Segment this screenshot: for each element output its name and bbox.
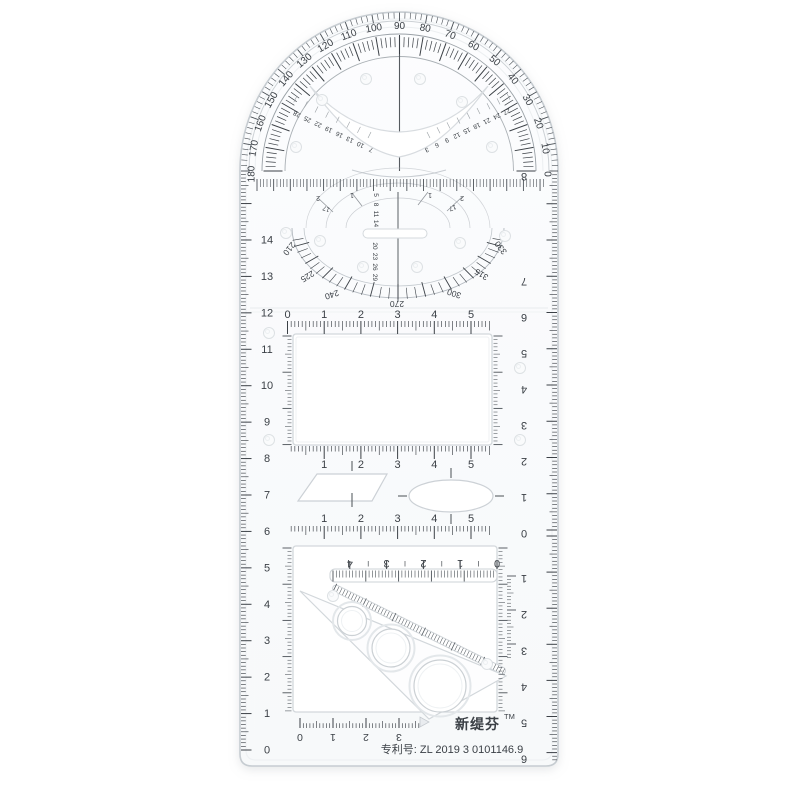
dial-column-number: 14 bbox=[372, 220, 379, 228]
oval-cutout bbox=[409, 480, 493, 512]
circle-cutout bbox=[372, 629, 410, 667]
ruled-slot bbox=[330, 569, 497, 582]
right-ruler-number: 1 bbox=[521, 491, 527, 503]
h-scale-number: 4 bbox=[431, 459, 437, 471]
dial-column-number: 8 bbox=[372, 203, 379, 207]
bottom-scale-number: 3 bbox=[396, 731, 402, 743]
h-scale-number: 3 bbox=[395, 513, 401, 525]
h-scale-number: 1 bbox=[321, 459, 327, 471]
brand-trademark: TM bbox=[504, 712, 515, 721]
left-ruler-number: 13 bbox=[261, 271, 273, 283]
h-scale-number: 4 bbox=[431, 513, 437, 525]
left-ruler-number: 8 bbox=[264, 453, 270, 465]
h-scale-number: 1 bbox=[321, 513, 327, 525]
left-ruler-number: 14 bbox=[261, 234, 273, 246]
bottom-scale-number: 1 bbox=[330, 731, 336, 743]
protractor-degree-label: 90 bbox=[394, 21, 406, 32]
h-scale-number: 4 bbox=[431, 309, 437, 321]
right-ruler-number: 1 bbox=[521, 572, 527, 584]
right-ruler-number: 4 bbox=[521, 680, 527, 692]
right-ruler-number: 3 bbox=[521, 644, 527, 656]
dial-column-number: 11 bbox=[372, 211, 379, 218]
left-ruler-number: 2 bbox=[264, 672, 270, 684]
h-scale-number: 1 bbox=[321, 309, 327, 321]
left-ruler-number: 12 bbox=[261, 307, 273, 319]
dial-column-number: 29 bbox=[371, 274, 378, 282]
right-ruler-number: 3 bbox=[521, 419, 527, 431]
bottom-scale-number: 0 bbox=[297, 731, 303, 743]
dial-column-number: 20 bbox=[371, 242, 378, 250]
right-ruler-number: 7 bbox=[521, 275, 527, 287]
h-scale-number: 2 bbox=[358, 513, 364, 525]
dial-arc-label: 1 bbox=[350, 191, 354, 198]
h-scale-number: 0 bbox=[284, 309, 290, 321]
left-ruler-number: 3 bbox=[264, 635, 270, 647]
h-scale-number: 5 bbox=[468, 513, 474, 525]
dial-arc-label: 1 bbox=[428, 191, 432, 198]
product-photo: 0102030405060708090100110120130140150160… bbox=[0, 0, 800, 800]
patent-number: 专利号: ZL 2019 3 0101146.9 bbox=[381, 742, 523, 756]
right-ruler-number: 0 bbox=[521, 527, 527, 539]
brand-name: 新缇芬 bbox=[455, 716, 500, 732]
protractor-degree-label: 0 bbox=[542, 171, 553, 177]
left-ruler-number: 1 bbox=[264, 708, 270, 720]
left-ruler-number: 6 bbox=[264, 526, 270, 538]
right-ruler-number: 6 bbox=[521, 311, 527, 323]
dial-degree-label: 270 bbox=[390, 299, 404, 309]
h-scale-number: 2 bbox=[358, 309, 364, 321]
left-ruler-number: 7 bbox=[264, 489, 270, 501]
dial-column-number: 26 bbox=[371, 263, 378, 271]
h-scale-number: 3 bbox=[395, 309, 401, 321]
h-scale-number: 5 bbox=[468, 459, 474, 471]
dial-column-number: 5 bbox=[372, 193, 379, 197]
upper-window bbox=[293, 334, 492, 445]
dial-arc-label: 2 bbox=[460, 194, 464, 201]
right-ruler-number: 2 bbox=[521, 608, 527, 620]
dial-arc-label: 2 bbox=[316, 194, 320, 201]
dial-center-slot bbox=[363, 229, 427, 238]
h-scale-number: 3 bbox=[395, 459, 401, 471]
bottom-scale-number: 2 bbox=[363, 731, 369, 743]
left-ruler-number: 9 bbox=[264, 417, 270, 429]
right-ruler-number: 8 bbox=[521, 170, 527, 182]
dial-column-number: 23 bbox=[371, 253, 378, 261]
left-ruler-number: 0 bbox=[264, 745, 270, 757]
right-ruler-number: 2 bbox=[521, 455, 527, 467]
protractor-degree-label: 180 bbox=[247, 165, 258, 182]
geometric-ruler: 0102030405060708090100110120130140150160… bbox=[0, 0, 800, 800]
left-ruler-number: 5 bbox=[264, 562, 270, 574]
h-scale-number: 5 bbox=[468, 309, 474, 321]
lower-window bbox=[293, 546, 507, 719]
left-ruler-number: 4 bbox=[264, 599, 270, 611]
circle-cutout bbox=[414, 660, 466, 712]
h-scale-number: 2 bbox=[358, 459, 364, 471]
left-ruler-number: 10 bbox=[261, 380, 273, 392]
right-ruler-number: 4 bbox=[521, 383, 527, 395]
left-ruler-number: 11 bbox=[261, 344, 272, 356]
upper-window-cutout bbox=[293, 334, 492, 445]
right-ruler-number: 5 bbox=[521, 717, 527, 729]
right-ruler-number: 5 bbox=[521, 347, 527, 359]
